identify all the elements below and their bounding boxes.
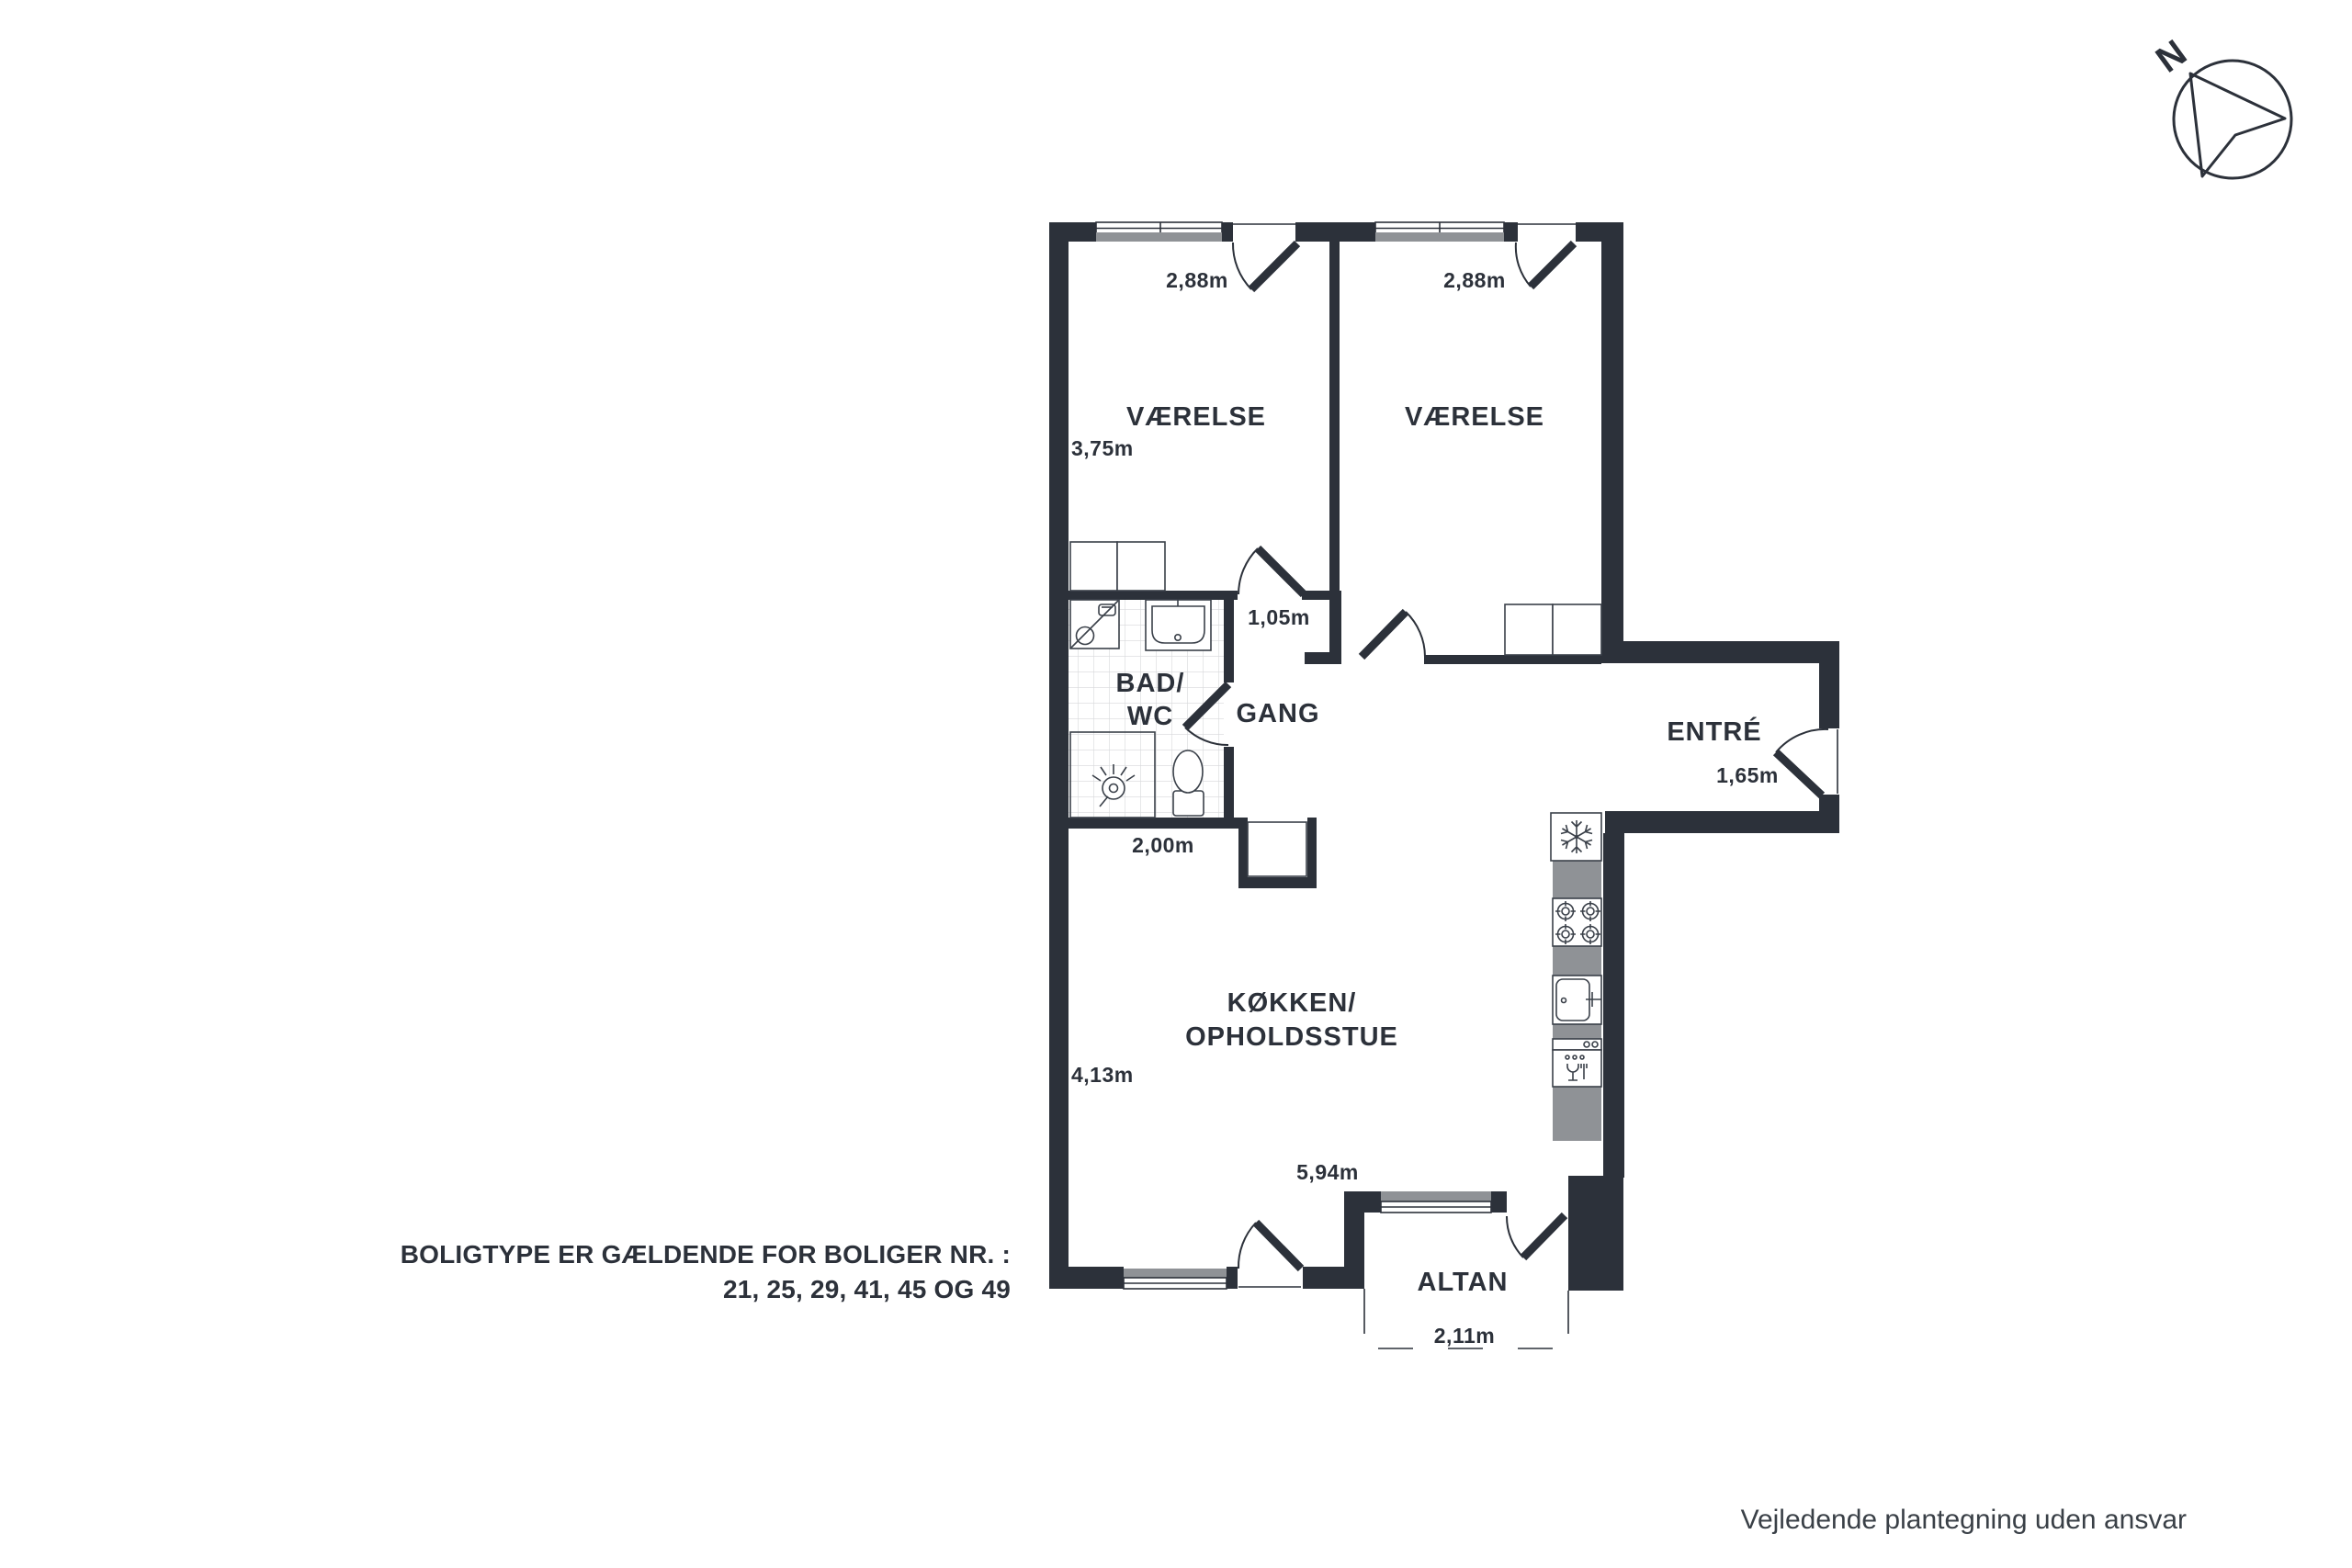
wall-segment xyxy=(1224,600,1234,682)
door-bedroom-left-hall xyxy=(1238,548,1304,594)
compass-north-label: N xyxy=(2149,32,2194,81)
hall-width: 1,05m xyxy=(1248,605,1310,629)
wardrobe-bedroom-left xyxy=(1070,542,1165,591)
bathroom-sink-icon xyxy=(1146,600,1211,650)
hall-label: GANG xyxy=(1237,699,1320,728)
wall-segment xyxy=(1227,1267,1238,1289)
bath-label-line2: WC xyxy=(1127,702,1173,731)
bedroom-left-width: 2,88m xyxy=(1166,268,1228,292)
kitchen-label-line2: OPHOLDSSTUE xyxy=(1185,1022,1398,1052)
hall-closet-box xyxy=(1248,822,1306,876)
wall-segment xyxy=(1603,833,1624,1178)
window-kitchen-south xyxy=(1124,1269,1227,1289)
wall-segment xyxy=(1329,242,1340,591)
wardrobe-bedroom-right xyxy=(1505,604,1601,655)
housing-type-note-line2: 21, 25, 29, 41, 45 OG 49 xyxy=(723,1275,1011,1303)
wall-segment xyxy=(1568,1176,1623,1291)
kitchen-depth: 4,13m xyxy=(1071,1063,1134,1087)
bedroom-left-label: VÆRELSE xyxy=(1126,402,1266,432)
washing-machine-icon xyxy=(1070,600,1119,649)
wall-segment xyxy=(1049,222,1069,1289)
bedroom-left-depth: 3,75m xyxy=(1071,436,1134,460)
bedroom-right-width: 2,88m xyxy=(1443,268,1506,292)
wall-segment xyxy=(1605,811,1839,833)
door-balcony xyxy=(1507,1215,1565,1258)
kitchen-sink-icon xyxy=(1553,976,1601,1024)
wall-segment xyxy=(1424,655,1601,664)
wall-segment xyxy=(1305,652,1329,664)
floorplan-page: N xyxy=(0,0,2352,1568)
wall-segment xyxy=(1601,641,1839,663)
wall-segment xyxy=(1222,222,1233,242)
fridge-icon xyxy=(1551,813,1601,861)
kitchen-width: 5,94m xyxy=(1296,1160,1359,1184)
wall-segment xyxy=(1069,591,1238,600)
wall-segment xyxy=(1049,222,1096,242)
window-balcony xyxy=(1381,1191,1491,1213)
kitchen-label-line1: KØKKEN/ xyxy=(1227,988,1357,1018)
wall-segment xyxy=(1049,1267,1124,1289)
floorplan-drawing: N xyxy=(0,0,2352,1568)
wall-segment xyxy=(1069,818,1238,829)
bath-label-line1: BAD/ xyxy=(1116,669,1185,698)
balcony-label: ALTAN xyxy=(1418,1268,1509,1297)
balcony-width: 2,11m xyxy=(1434,1324,1495,1348)
entry-width: 1,65m xyxy=(1716,763,1779,787)
wall-segment xyxy=(1601,222,1623,663)
toilet-icon xyxy=(1173,750,1204,816)
wall-segment xyxy=(1344,1191,1381,1213)
wall-segment xyxy=(1238,877,1317,888)
bedroom-right-label: VÆRELSE xyxy=(1405,402,1544,432)
door-bedroom-right-hall xyxy=(1362,612,1425,657)
bath-width: 2,00m xyxy=(1132,833,1194,857)
wall-segment xyxy=(1819,663,1839,728)
window-bedroom-left xyxy=(1096,222,1222,242)
wall-segment xyxy=(1295,222,1375,242)
compass-icon: N xyxy=(2149,32,2291,178)
door-entry-front xyxy=(1776,729,1837,795)
wall-segment xyxy=(1329,591,1341,664)
window-bedroom-right xyxy=(1375,222,1504,242)
door-bedroom-left-window-side xyxy=(1233,224,1297,289)
wall-segment xyxy=(1819,795,1839,813)
dishwasher-icon xyxy=(1553,1039,1601,1087)
door-kitchen-south xyxy=(1238,1223,1301,1287)
door-bedroom-right-window-side xyxy=(1516,224,1576,287)
disclaimer-note: Vejledende plantegning uden ansvar xyxy=(1741,1505,2187,1535)
wall-segment xyxy=(1491,1191,1507,1213)
labels: VÆRELSE 2,88m 3,75m VÆRELSE 2,88m BAD/ W… xyxy=(401,268,2187,1535)
wall-segment xyxy=(1224,747,1234,818)
housing-type-note-line1: BOLIGTYPE ER GÆLDENDE FOR BOLIGER NR. : xyxy=(401,1240,1011,1269)
entry-label: ENTRÉ xyxy=(1667,716,1761,747)
stove-icon xyxy=(1553,898,1601,946)
wall-segment xyxy=(1504,222,1518,242)
